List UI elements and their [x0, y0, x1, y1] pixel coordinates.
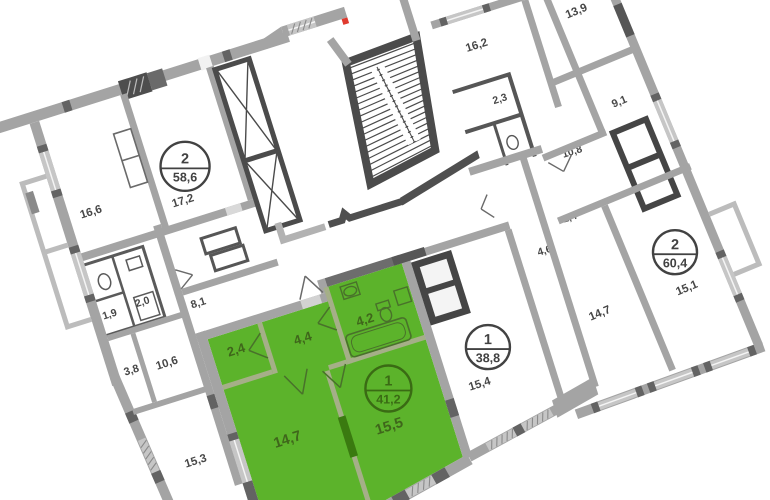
svg-text:14,7: 14,7	[587, 304, 612, 324]
svg-text:58,6: 58,6	[173, 170, 197, 184]
svg-text:9,1: 9,1	[610, 94, 629, 111]
svg-text:8,1: 8,1	[189, 295, 207, 311]
svg-text:3,8: 3,8	[122, 363, 140, 379]
svg-text:15,3: 15,3	[183, 452, 208, 470]
svg-text:15,4: 15,4	[467, 375, 493, 393]
svg-text:17,2: 17,2	[171, 192, 196, 210]
svg-text:2: 2	[181, 151, 189, 167]
svg-text:1: 1	[384, 373, 392, 389]
svg-text:10,6: 10,6	[155, 355, 180, 373]
svg-text:38,8: 38,8	[476, 351, 500, 365]
svg-text:13,9: 13,9	[564, 2, 589, 22]
svg-text:60,4: 60,4	[663, 256, 687, 270]
svg-text:2: 2	[671, 237, 679, 253]
svg-text:16,2: 16,2	[464, 37, 489, 55]
svg-text:1,9: 1,9	[101, 307, 119, 323]
svg-text:2,3: 2,3	[491, 91, 509, 107]
svg-text:15,1: 15,1	[674, 278, 700, 298]
svg-text:16,6: 16,6	[79, 203, 104, 221]
svg-text:1: 1	[484, 332, 492, 348]
svg-text:41,2: 41,2	[376, 392, 400, 406]
